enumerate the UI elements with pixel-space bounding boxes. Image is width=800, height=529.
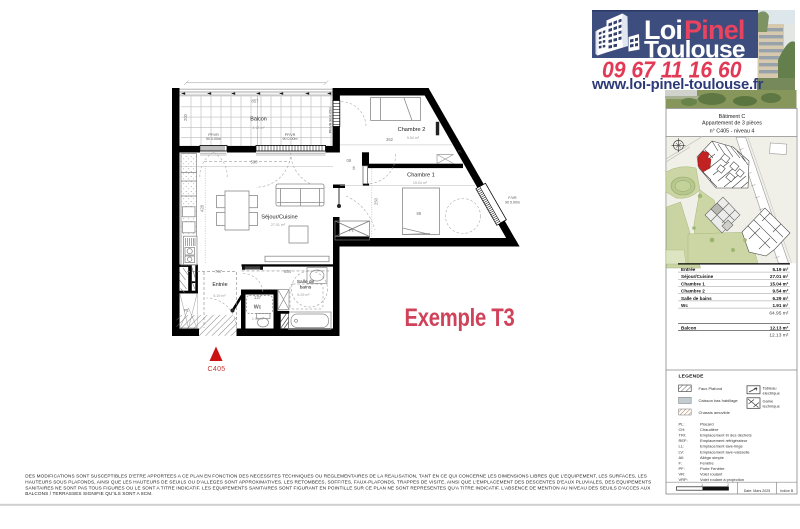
svg-text:Wc: Wc — [254, 305, 262, 311]
svg-text:4.13 m²: 4.13 m² — [252, 126, 265, 130]
svg-text:C405: C405 — [208, 366, 226, 373]
svg-text:LL:: LL: — [679, 444, 685, 449]
svg-text:PL: PL — [349, 228, 355, 233]
svg-text:27.01 m²: 27.01 m² — [271, 223, 286, 227]
svg-text:Balcon: Balcon — [681, 325, 697, 330]
svg-text:12.13 m²: 12.13 m² — [769, 333, 788, 339]
svg-text:CH:: CH: — [679, 427, 686, 432]
svg-text:854: 854 — [284, 269, 292, 274]
svg-text:6.29 m²: 6.29 m² — [297, 293, 310, 297]
svg-text:Date: Mars 2025: Date: Mars 2025 — [744, 489, 771, 493]
svg-text:électrique: électrique — [763, 390, 781, 395]
svg-text:TRI:: TRI: — [679, 433, 687, 438]
svg-text:B: B — [353, 166, 356, 171]
svg-text:PF/VR 90 0.05m: PF/VR 90 0.05m — [329, 107, 333, 134]
svg-text:Chaudière: Chaudière — [700, 427, 719, 432]
svg-text:590: 590 — [251, 160, 259, 165]
svg-text:08: 08 — [347, 158, 352, 163]
svg-text:Allège simple: Allège simple — [700, 455, 725, 460]
svg-text:250: 250 — [374, 197, 379, 205]
svg-text:PL: PL — [184, 309, 189, 313]
svg-text:LEGENDE: LEGENDE — [679, 374, 705, 380]
svg-text:9.54 m²: 9.54 m² — [772, 289, 788, 294]
svg-text:SANITAIRES NE SONT PAS TOUS FI: SANITAIRES NE SONT PAS TOUS FIGURES OU L… — [25, 485, 650, 490]
svg-text:27.01 m²: 27.01 m² — [770, 274, 789, 279]
svg-text:Balcon: Balcon — [250, 117, 266, 123]
svg-text:857: 857 — [252, 99, 260, 104]
svg-text:Salle de: Salle de — [297, 279, 315, 285]
svg-text:90 0.00m: 90 0.00m — [283, 137, 298, 141]
svg-text:Bâtiment C: Bâtiment C — [719, 114, 746, 120]
svg-text:Emplacement tri des déchets: Emplacement tri des déchets — [700, 433, 752, 438]
svg-text:1.91 m²: 1.91 m² — [252, 317, 265, 321]
svg-text:Emplacement lave-linge: Emplacement lave-linge — [700, 444, 743, 449]
svg-text:Chambre 1: Chambre 1 — [681, 281, 705, 286]
svg-text:5.19 m²: 5.19 m² — [213, 294, 226, 298]
svg-text:90 5.00m: 90 5.00m — [505, 201, 520, 205]
svg-text:n° C405 - niveau 4: n° C405 - niveau 4 — [710, 129, 755, 135]
svg-text:64.95 m²: 64.95 m² — [769, 310, 788, 316]
svg-text:137: 137 — [254, 295, 262, 300]
svg-text:LV:: LV: — [679, 449, 685, 454]
svg-text:Chambre 2: Chambre 2 — [398, 127, 426, 133]
svg-text:Wc: Wc — [681, 303, 688, 308]
svg-text:Volet roulant à projection: Volet roulant à projection — [700, 477, 744, 482]
svg-text:Porte Fenêtre: Porte Fenêtre — [700, 466, 725, 471]
svg-text:9.54 m²: 9.54 m² — [407, 136, 420, 140]
svg-text:5.19 m²: 5.19 m² — [772, 267, 788, 272]
svg-text:15.04 m²: 15.04 m² — [413, 181, 428, 185]
svg-text:362: 362 — [386, 137, 394, 142]
svg-text:Séjour/Cuisine: Séjour/Cuisine — [261, 215, 297, 221]
svg-text:Chassis amovible: Chassis amovible — [699, 410, 731, 415]
svg-text:1.91 m²: 1.91 m² — [772, 303, 788, 308]
svg-text:www.loi-pinel-toulouse.fr: www.loi-pinel-toulouse.fr — [591, 77, 764, 93]
svg-text:15.04 m²: 15.04 m² — [770, 281, 789, 286]
svg-text:Salle de bains: Salle de bains — [681, 296, 712, 301]
svg-text:bains: bains — [300, 285, 312, 291]
svg-text:Placard: Placard — [700, 421, 714, 426]
svg-text:Faux Plafond: Faux Plafond — [699, 386, 723, 391]
svg-text:Chambre 1: Chambre 1 — [407, 173, 435, 179]
svg-text:Chambre 2: Chambre 2 — [681, 289, 705, 294]
svg-text:PL:: PL: — [679, 421, 685, 426]
svg-text:VRP:: VRP: — [679, 477, 688, 482]
svg-text:DES MODIFICATIONS SONT SUSCEPT: DES MODIFICATIONS SONT SUSCEPTIBLES D'ET… — [25, 474, 647, 479]
svg-text:428: 428 — [200, 204, 205, 212]
svg-text:PF:: PF: — [679, 466, 685, 471]
svg-text:767: 767 — [215, 269, 223, 274]
svg-text:Volet roulant: Volet roulant — [700, 472, 723, 477]
svg-text:2: 2 — [727, 483, 729, 487]
svg-text:REF:: REF: — [679, 438, 688, 443]
svg-text:1: 1 — [701, 483, 703, 487]
svg-text:12.13 m²: 12.13 m² — [770, 325, 789, 330]
svg-text:Entrée: Entrée — [212, 282, 227, 288]
svg-text:Entrée: Entrée — [681, 267, 696, 272]
svg-text:HAUTEURS SOUS PLAFONDS, AINSI: HAUTEURS SOUS PLAFONDS, AINSI QUE LES HA… — [25, 479, 651, 484]
svg-text:PL: PL — [458, 150, 462, 154]
svg-text:Appartement de 3 pièces: Appartement de 3 pièces — [702, 121, 762, 127]
svg-text:BALCONS / TERRASSES SIGNIFIE Q: BALCONS / TERRASSES SIGNIFIE QU'ILS SONT… — [25, 491, 152, 496]
svg-text:88: 88 — [417, 211, 422, 216]
svg-text:VR:: VR: — [679, 472, 686, 477]
svg-text:Caisson bas habillage: Caisson bas habillage — [699, 398, 739, 403]
svg-text:Indice B: Indice B — [780, 489, 794, 493]
svg-text:Exemple T3: Exemple T3 — [405, 303, 515, 332]
svg-text:Séjour/Cuisine: Séjour/Cuisine — [681, 274, 714, 279]
svg-text:Emplacement réfrigérateur: Emplacement réfrigérateur — [700, 438, 748, 443]
svg-text:Emplacement lave-vaisselle: Emplacement lave-vaisselle — [700, 449, 750, 454]
svg-text:F:: F: — [679, 460, 683, 465]
svg-text:6.29 m²: 6.29 m² — [772, 296, 788, 301]
svg-text:F/VR: F/VR — [508, 196, 517, 200]
svg-text:technique: technique — [763, 403, 781, 408]
svg-text:All:: All: — [679, 455, 685, 460]
svg-text:200: 200 — [183, 113, 188, 121]
svg-text:90 0.00m: 90 0.00m — [206, 137, 221, 141]
svg-text:Fenêtre: Fenêtre — [700, 460, 715, 465]
